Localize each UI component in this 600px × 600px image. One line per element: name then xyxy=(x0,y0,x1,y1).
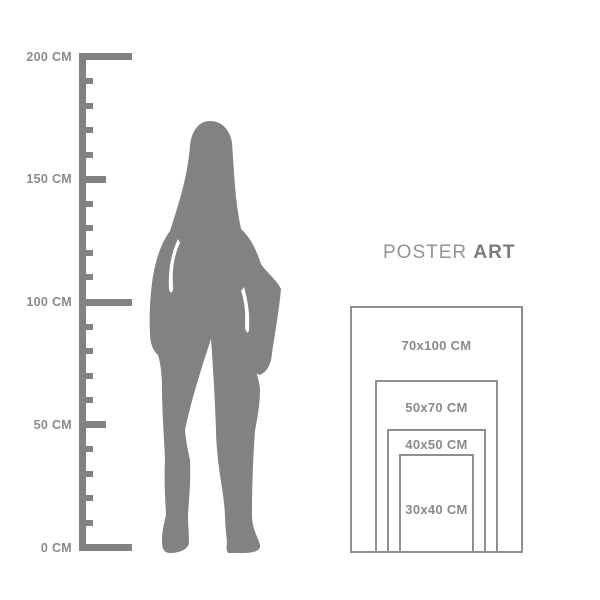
ruler-tick xyxy=(79,544,132,551)
poster-size-label: 40x50 CM xyxy=(367,437,507,453)
woman-silhouette xyxy=(148,121,285,553)
ruler-tick xyxy=(79,225,93,231)
ruler-tick xyxy=(79,373,93,379)
ruler-tick xyxy=(79,78,93,84)
silhouette-body xyxy=(150,121,281,553)
ruler-tick xyxy=(79,324,93,330)
ruler-tick-label: 200 CM xyxy=(0,49,72,65)
ruler-tick-label: 0 CM xyxy=(0,540,72,556)
ruler-tick xyxy=(79,446,93,452)
ruler-tick xyxy=(79,471,93,477)
ruler-tick-label: 100 CM xyxy=(0,294,72,310)
ruler-tick xyxy=(79,53,132,60)
poster-size-label: 70x100 CM xyxy=(367,338,507,354)
poster-guide-title: POSTER ART xyxy=(383,242,515,264)
ruler-tick xyxy=(79,176,106,183)
poster-title-regular: POSTER xyxy=(383,242,467,263)
size-guide-diagram: 0 CM50 CM100 CM150 CM200 CM POSTER ART 7… xyxy=(0,0,600,600)
ruler-tick xyxy=(79,397,93,403)
ruler-tick-label: 50 CM xyxy=(0,417,72,433)
ruler-tick xyxy=(79,250,93,256)
ruler-tick xyxy=(79,201,93,207)
ruler-tick-label: 150 CM xyxy=(0,171,72,187)
poster-title-bold: ART xyxy=(473,242,515,263)
ruler-tick xyxy=(79,152,93,158)
ruler-tick xyxy=(79,495,93,501)
ruler-tick xyxy=(79,520,93,526)
poster-size-label: 30x40 CM xyxy=(367,502,507,518)
poster-size-label: 50x70 CM xyxy=(367,400,507,416)
ruler-tick xyxy=(79,127,93,133)
ruler-tick xyxy=(79,348,93,354)
ruler-tick xyxy=(79,103,93,109)
ruler-tick xyxy=(79,421,106,428)
ruler-tick xyxy=(79,274,93,280)
ruler-tick xyxy=(79,299,132,306)
